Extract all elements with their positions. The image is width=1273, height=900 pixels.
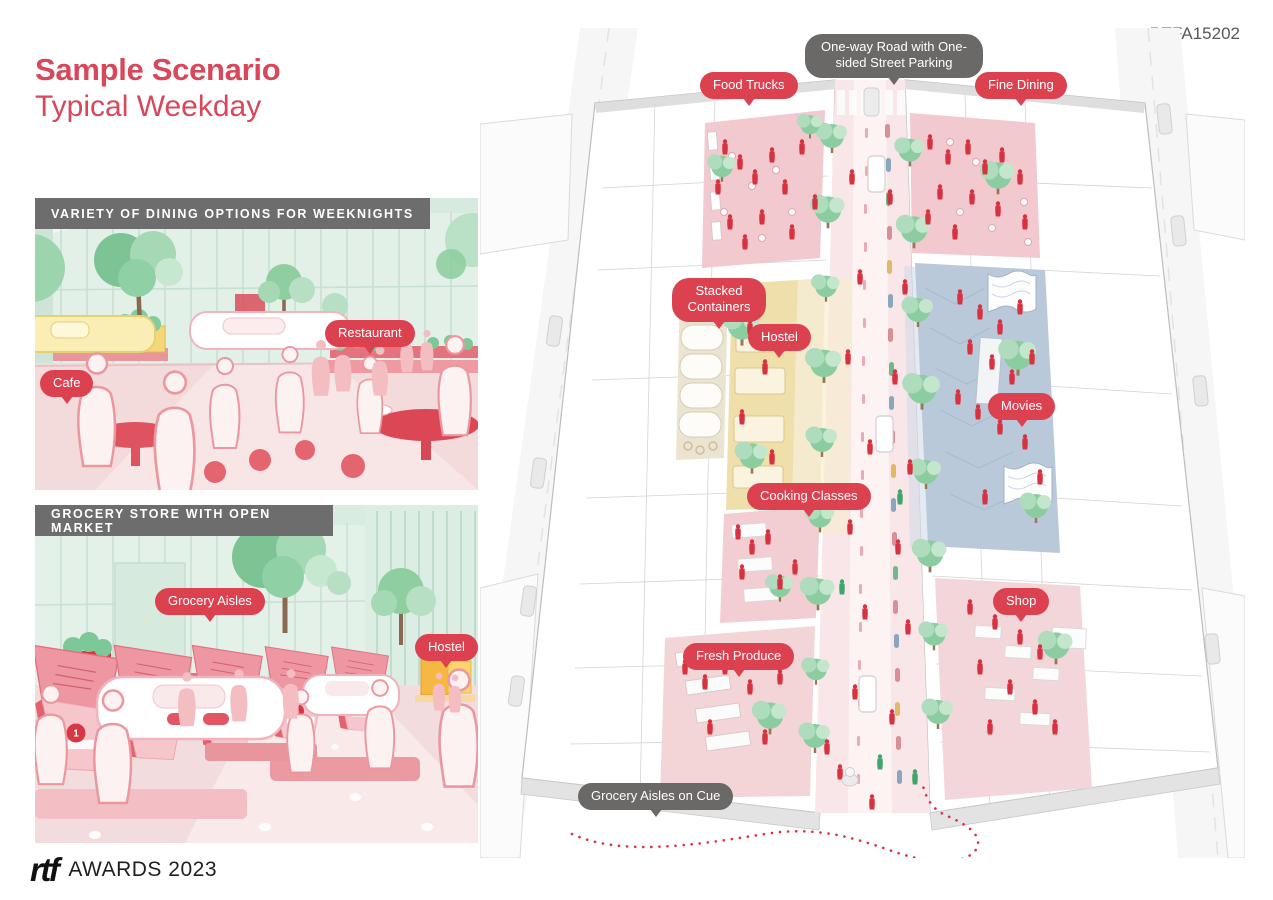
rtf-logo: rtf [30,851,57,890]
footer-awards-label: AWARDS 2023 [68,858,217,882]
yellow-car [35,316,155,352]
label-hostel-inset: Hostel [415,634,478,661]
label-grocery-aisles-on-cue: Grocery Aisles on Cue [578,783,733,810]
dining-scene-image: Restaurant Cafe [35,198,478,490]
panel-dining: Restaurant Cafe VARIETY OF DINING OPTION… [35,198,478,490]
grocery-scene-illustration: 1 2 3 4 5 [35,505,478,843]
label-one-way-road: One-way Road with One-sided Street Parki… [805,34,983,78]
label-fresh-produce: Fresh Produce [683,643,794,670]
label-grocery-aisles: Grocery Aisles [155,588,265,615]
label-food-trucks: Food Trucks [700,72,798,99]
label-hostel-main: Hostel [748,324,811,351]
svg-text:1: 1 [73,729,79,740]
footer: rtf AWARDS 2023 [30,851,217,889]
panel-grocery-header: GROCERY STORE WITH OPEN MARKET [35,505,333,536]
label-restaurant: Restaurant [325,320,415,347]
page-title: Sample Scenario Typical Weekday [35,52,280,124]
label-cafe: Cafe [40,370,93,397]
presentation-board: RTFA15202 Sample Scenario Typical Weekda… [0,0,1273,900]
panel-grocery: 1 2 3 4 5 [35,505,478,843]
dining-scene-illustration [35,198,478,490]
label-movies: Movies [988,393,1055,420]
title-line-1: Sample Scenario [35,52,280,89]
title-line-2: Typical Weekday [35,89,280,124]
site-axonometric: One-way Road with One-sided Street Parki… [480,28,1245,858]
site-axonometric-illustration [480,28,1245,858]
label-shop: Shop [993,588,1049,615]
grocery-scene-image: 1 2 3 4 5 [35,505,478,843]
label-fine-dining: Fine Dining [975,72,1067,99]
panel-dining-header: VARIETY OF DINING OPTIONS FOR WEEKNIGHTS [35,198,430,229]
label-cooking-classes: Cooking Classes [747,483,871,510]
label-stacked-containers: Stacked Containers [672,278,766,322]
